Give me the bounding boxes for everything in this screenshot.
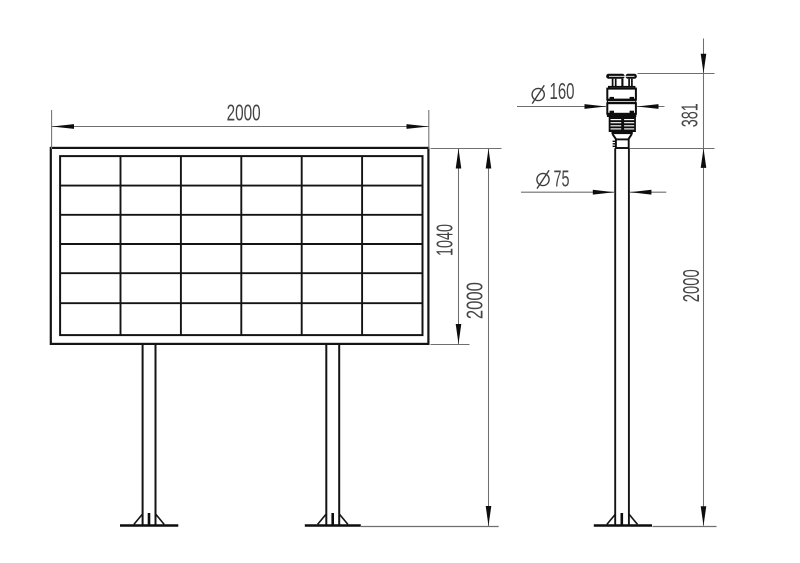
svg-text:160: 160 <box>550 78 575 104</box>
svg-text:2000: 2000 <box>678 269 704 302</box>
svg-text:75: 75 <box>554 166 570 192</box>
svg-text:1040: 1040 <box>432 224 458 256</box>
svg-text:2000: 2000 <box>227 100 261 126</box>
svg-text:2000: 2000 <box>462 282 488 319</box>
svg-text:381: 381 <box>677 103 703 127</box>
